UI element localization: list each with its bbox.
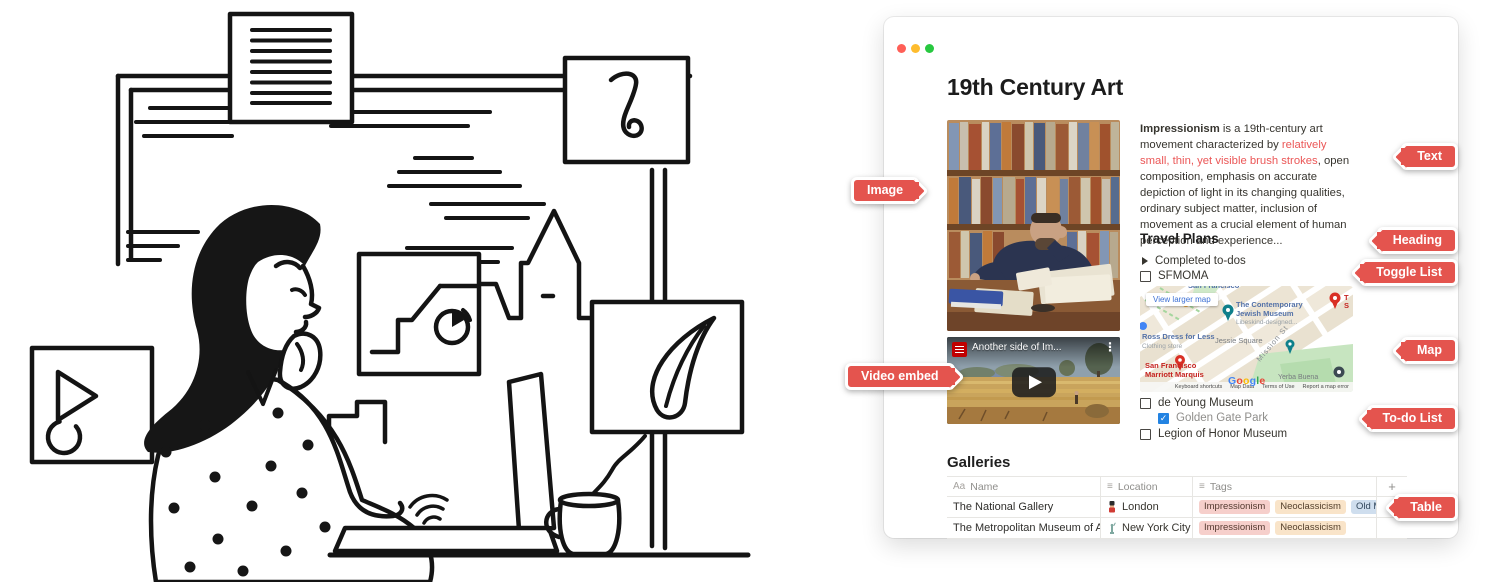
annotation-badge-video-embed: Video embed (845, 363, 955, 390)
cell-tags[interactable]: Impressionism Neoclassicism Old Masters (1193, 497, 1377, 517)
table-header-row: AaName ≡Location ≡Tags + (947, 476, 1407, 497)
leaf-frame (592, 302, 742, 432)
statue-of-liberty-icon (1107, 522, 1117, 534)
page-title: 19th Century Art (947, 74, 1123, 101)
map-store-label: Ross Dress for LessClothing store (1142, 333, 1215, 351)
view-larger-map-link[interactable]: View larger map (1146, 293, 1218, 306)
painting-portrait (947, 120, 1120, 331)
mug (546, 436, 645, 554)
play-triangle-icon (1029, 375, 1042, 389)
image-block[interactable] (947, 120, 1120, 331)
galleries-heading: Galleries (947, 454, 1010, 471)
todo-row-golden-gate[interactable]: ✓ Golden Gate Park (1158, 411, 1268, 425)
todo-row-legion-of-honor[interactable]: Legion of Honor Museum (1140, 427, 1287, 441)
tag-pill: Neoclassicism (1275, 500, 1346, 514)
map-hotel-label: San FranciscoMarriott Marquis (1145, 362, 1204, 379)
map-museum-label: The Contemporary Jewish MuseumLibeskind-… (1236, 301, 1326, 328)
cell-name[interactable]: The National Gallery (947, 497, 1101, 517)
tag-pill: Impressionism (1199, 521, 1270, 535)
column-header-name[interactable]: AaName (947, 477, 1101, 496)
map-embed-block[interactable]: San Francisco View larger map The Contem… (1140, 286, 1353, 392)
terms-of-use-link[interactable]: Terms of Use (1262, 384, 1294, 390)
map-clipped-top-label: San Francisco (1188, 286, 1239, 291)
column-header-location[interactable]: ≡Location (1101, 477, 1193, 496)
checkbox-unchecked-icon[interactable] (1140, 429, 1151, 440)
checkbox-unchecked-icon[interactable] (1140, 398, 1151, 409)
todo-row-sfmoma[interactable]: SFMOMA (1140, 269, 1208, 283)
annotation-badge-table: Table (1394, 494, 1458, 521)
cell-location[interactable]: London (1101, 497, 1193, 517)
video-title[interactable]: Another side of Im... (972, 342, 1102, 353)
typing-motion-lines (410, 496, 447, 523)
galleries-table: AaName ≡Location ≡Tags + The National Ga… (947, 476, 1407, 539)
text-lines (128, 108, 544, 262)
cell-location[interactable]: New York City (1101, 518, 1193, 538)
video-play-button[interactable] (1012, 367, 1056, 397)
checkbox-unchecked-icon[interactable] (1140, 271, 1151, 282)
annotation-badge-map: Map (1401, 337, 1458, 364)
toggle-label: Completed to-dos (1155, 255, 1246, 267)
guardsman-icon (1107, 501, 1117, 513)
google-logo: Google (1228, 375, 1265, 387)
annotation-badge-toggle-list: Toggle List (1360, 259, 1458, 286)
toggle-completed-todos[interactable]: Completed to-dos (1140, 254, 1246, 268)
column-header-tags[interactable]: ≡Tags (1193, 477, 1377, 496)
map-clipped-right-label2: S (1344, 302, 1349, 311)
todo-label: de Young Museum (1158, 397, 1253, 409)
todo-label: Legion of Honor Museum (1158, 428, 1287, 440)
traffic-light-close[interactable] (897, 44, 906, 53)
channel-avatar[interactable] (952, 342, 967, 357)
tag-pill: Impressionism (1199, 500, 1270, 514)
annotation-badge-heading: Heading (1377, 227, 1458, 254)
title-property-icon: Aa (953, 481, 965, 492)
intro-paragraph: Impressionism is a 19th-century art move… (1140, 121, 1353, 249)
workspace-illustration (0, 0, 770, 582)
note-frame (565, 58, 688, 162)
video-menu-icon[interactable]: ⋮ (1104, 340, 1116, 354)
table-row[interactable]: The Metropolitan Museum of Art New York … (947, 518, 1407, 539)
tag-pill: Neoclassicism (1275, 521, 1346, 535)
travel-plans-heading: Travel Plans (1140, 231, 1219, 246)
annotation-badge-todo-list: To-do List (1367, 405, 1458, 432)
media-frame (32, 348, 152, 462)
annotation-badge-text: Text (1401, 143, 1458, 170)
table-row[interactable]: The National Gallery London Impressionis… (947, 497, 1407, 518)
cell-name[interactable]: The Metropolitan Museum of Art (947, 518, 1101, 538)
annotation-badge-image: Image (851, 177, 919, 204)
todo-label-done: Golden Gate Park (1176, 412, 1268, 424)
video-embed-block[interactable]: Another side of Im... ⋮ (947, 337, 1120, 424)
todo-row-de-young[interactable]: de Young Museum (1140, 396, 1253, 410)
intro-bold: Impressionism (1140, 123, 1220, 135)
page: 19th Century Art (0, 0, 1488, 582)
map-park-label: Yerba Buena (1278, 374, 1318, 381)
todo-label: SFMOMA (1158, 270, 1208, 282)
text-property-icon: ≡ (1107, 481, 1113, 492)
keyboard-shortcuts-link[interactable]: Keyboard shortcuts (1175, 384, 1222, 390)
steam (592, 436, 645, 495)
checkbox-checked-icon[interactable]: ✓ (1158, 413, 1169, 424)
traffic-light-zoom[interactable] (925, 44, 934, 53)
chart-frame (359, 254, 479, 374)
toggle-arrow-icon[interactable] (1142, 257, 1148, 265)
document-frame (230, 14, 352, 122)
traffic-light-minimize[interactable] (911, 44, 920, 53)
tag-pill: Old Masters (1351, 500, 1377, 514)
cell-tags[interactable]: Impressionism Neoclassicism (1193, 518, 1377, 538)
report-map-error-link[interactable]: Report a map error (1303, 384, 1349, 390)
tags-property-icon: ≡ (1199, 481, 1205, 492)
map-square-label: Jessie Square (1215, 336, 1263, 345)
